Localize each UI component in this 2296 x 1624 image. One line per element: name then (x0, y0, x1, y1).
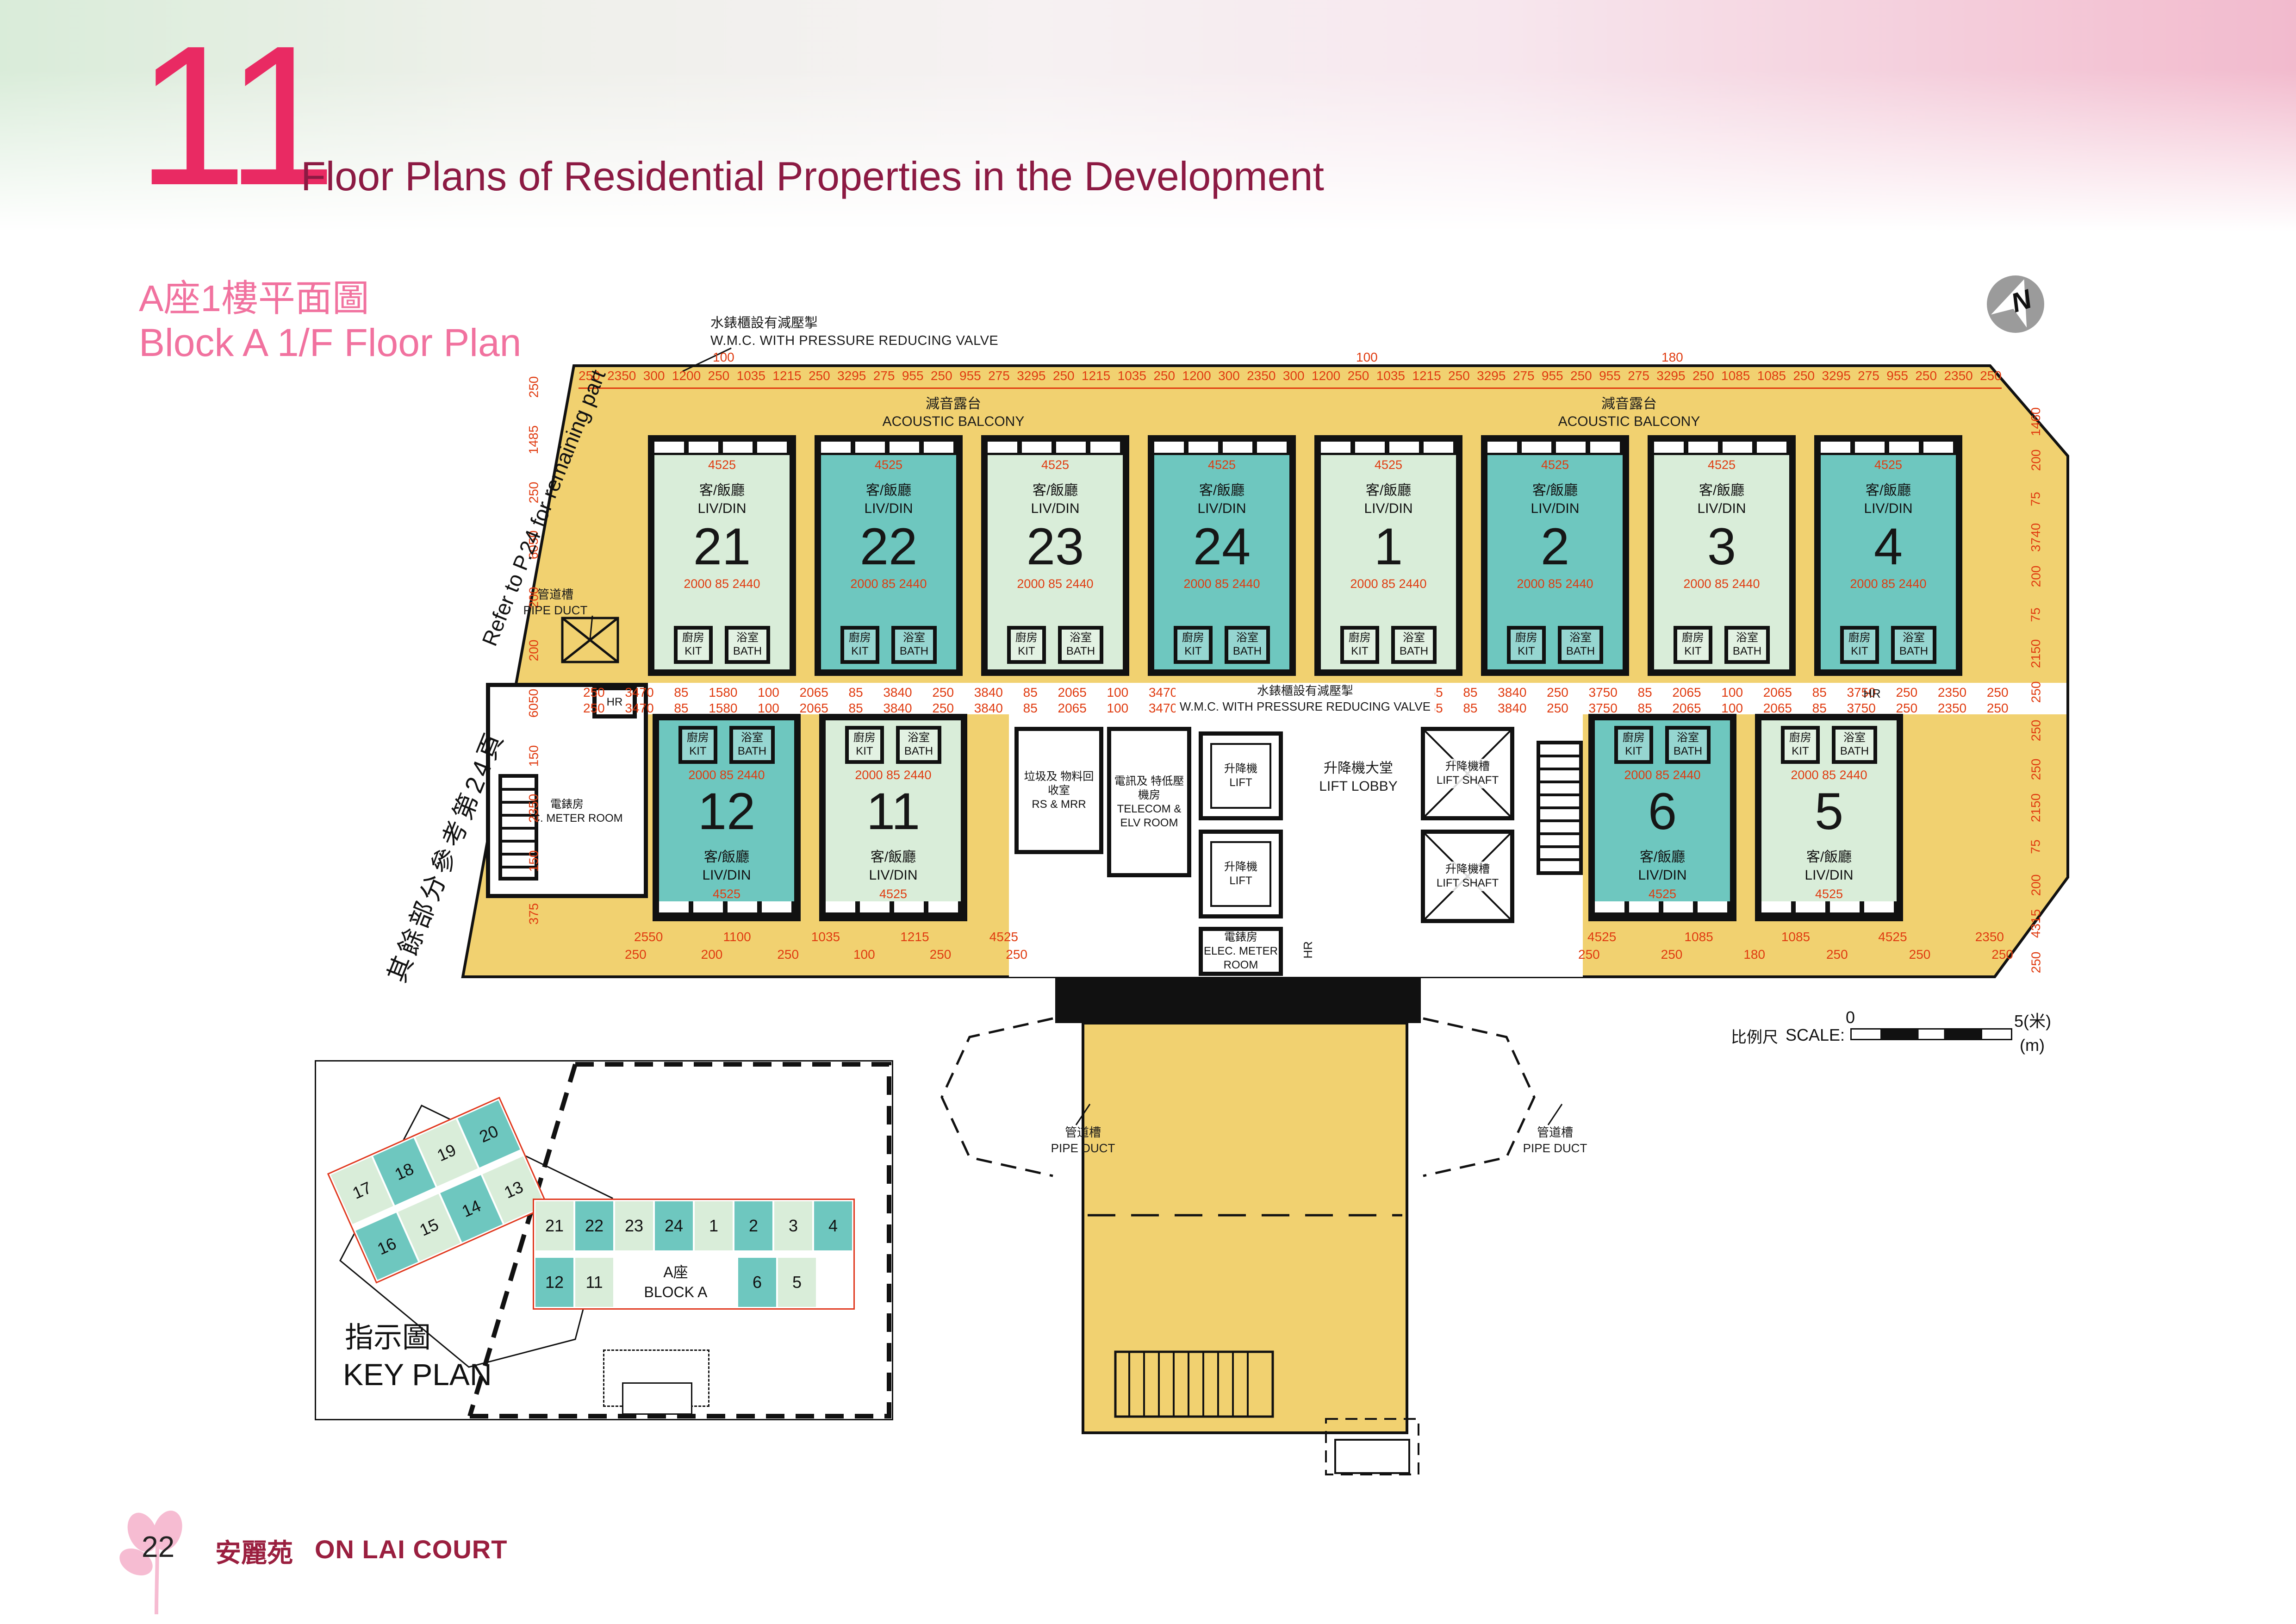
dimension-value: 1580 (709, 701, 737, 716)
dimension-value: 3750 (1847, 701, 1875, 716)
scale-bar: 比例尺 SCALE: 0 5(米) (m) (1731, 1012, 2092, 1062)
dimension-value: 100 (1721, 701, 1743, 716)
dimension-value: 250 (1987, 701, 2009, 716)
kitchen-label: 廚房KIT (1614, 726, 1653, 764)
lift-2: 升降機LIFT (1199, 830, 1283, 918)
unit-split-dim: 2000 85 2440 (1183, 577, 1260, 591)
bathroom-label: 浴室BATH (1832, 726, 1877, 764)
window-strip (1821, 442, 1956, 455)
unit-width-dim: 4525 (1649, 887, 1676, 901)
dimension-value: 4525 (1587, 930, 1616, 944)
unit-number: 1 (1374, 519, 1403, 574)
dimension-value: 100 (853, 947, 875, 962)
dimension-value: 85 (1023, 685, 1038, 700)
unit-number: 24 (1193, 519, 1251, 574)
dimension-value: 2065 (1763, 685, 1792, 700)
dimension-value: 4525 (989, 930, 1018, 944)
dimension-value: 275 (1858, 369, 1879, 383)
dimension-value: 250 (708, 369, 730, 383)
unit-number: 12 (698, 784, 756, 839)
dimension-value: 3840 (1498, 685, 1526, 700)
unit-width-dim: 4525 (875, 458, 902, 472)
dimension-value: 250 (583, 701, 605, 716)
window-strip (659, 901, 794, 915)
kitchen-label: 廚房KIT (1007, 626, 1046, 664)
block-a-label: A座BLOCK A (615, 1258, 736, 1307)
dimension-value: 3840 (883, 701, 912, 716)
keyplan-unit-3: 3 (774, 1201, 812, 1250)
stair-lobby (1537, 741, 1583, 875)
rs-mrr-room: 垃圾及 物料回收室RS & MRR (1014, 727, 1103, 854)
unit-21: 4525客/飯廳LIV/DIN212000 85 2440廚房KIT浴室BATH (648, 435, 796, 676)
dimension-value: 1035 (1376, 369, 1405, 383)
unit-23: 4525客/飯廳LIV/DIN232000 85 2440廚房KIT浴室BATH (981, 435, 1129, 676)
unit-width-dim: 4525 (713, 887, 740, 901)
dimension-value: 85 (1023, 701, 1038, 716)
unit-24: 4525客/飯廳LIV/DIN242000 85 2440廚房KIT浴室BATH (1148, 435, 1296, 676)
dimension-value: 100 (1107, 701, 1128, 716)
dimension-value: 250 (1661, 947, 1683, 962)
dimension-value: 2065 (1763, 701, 1792, 716)
dimension-value: 2350 (1938, 685, 1966, 700)
pipe-duct-label-left: 管道槽PIPE DUCT (495, 587, 616, 618)
dimension-value: 100 (1107, 685, 1128, 700)
dimension-value: 2350 (1938, 701, 1966, 716)
kitchen-label: 廚房KIT (1174, 626, 1213, 664)
dimension-value: 85 (1638, 685, 1652, 700)
dimension-value: 250 (1153, 369, 1175, 383)
bathroom-label: 浴室BATH (725, 626, 770, 664)
dimension-value: 1085 (1721, 369, 1750, 383)
dimension-value: 1200 (1182, 369, 1211, 383)
dimension-value: 100 (1356, 350, 1378, 365)
dimension-value: 3750 (1589, 685, 1618, 700)
window-strip (1595, 901, 1730, 915)
dimension-row-bottom-right-b: 250250180250250250 (1578, 947, 2013, 962)
kitchen-label: 廚房KIT (840, 626, 879, 664)
dimension-value: 3740 (2028, 523, 2043, 552)
external-stair (1115, 1352, 1273, 1417)
key-plan-title-zh: 指示圖 (345, 1314, 431, 1355)
dimension-value: 200 (2028, 874, 2043, 896)
unit-row-bottom-right: 4525客/飯廳LIV/DIN62000 85 2440廚房KIT浴室BATH4… (1588, 714, 1903, 921)
dimension-value: 250 (1980, 369, 2002, 383)
livdin-label: 客/飯廳LIV/DIN (697, 481, 746, 518)
dimension-value: 85 (674, 685, 688, 700)
dimension-value: 1085 (1781, 930, 1810, 944)
key-plan: 17181920 16151413 212223241234 1211 A座BL… (315, 1060, 893, 1420)
dimension-row-bottom-right-a: 45251085108545252350 (1587, 930, 2004, 944)
dimension-value: 250 (1826, 947, 1848, 962)
dimension-value: 250 (1793, 369, 1815, 383)
dimension-value: 85 (674, 701, 688, 716)
dimension-value: 4315 (2028, 909, 2043, 938)
dimension-value: 3750 (1589, 701, 1618, 716)
dimension-value: 275 (873, 369, 895, 383)
unit-2: 4525客/飯廳LIV/DIN22000 85 2440廚房KIT浴室BATH (1481, 435, 1629, 676)
dimension-value: 250 (2028, 681, 2043, 703)
dimension-value: 250 (1915, 369, 1937, 383)
unit-width-dim: 4525 (708, 458, 736, 472)
keyplan-unit-11: 11 (575, 1258, 613, 1307)
dimension-value: 2350 (1944, 369, 1972, 383)
dimension-value: 1215 (900, 930, 929, 944)
plan-title-zh: A座1樓平面圖 (139, 269, 369, 322)
dimension-value: 1100 (723, 930, 751, 944)
pipe-duct-label-bottom-left: 管道槽PIPE DUCT (1027, 1125, 1139, 1156)
livdin-label: 客/飯廳LIV/DIN (702, 848, 751, 884)
key-plan-entrance (603, 1349, 709, 1407)
kitchen-label: 廚房KIT (1781, 726, 1820, 764)
dimension-value: 180 (1743, 947, 1765, 962)
keyplan-unit-5: 5 (778, 1258, 816, 1307)
dimension-value: 2065 (1672, 701, 1701, 716)
dimension-value: 250 (932, 701, 954, 716)
dimension-value: 180 (1661, 350, 1683, 365)
dimension-value: 1085 (1684, 930, 1713, 944)
dimension-value: 85 (1638, 701, 1652, 716)
dimension-value: 375 (526, 903, 541, 925)
dimension-col-left: 2501485250605020020060501502350150375 (523, 380, 544, 921)
dimension-value: 250 (1547, 701, 1568, 716)
dimension-value: 250 (583, 685, 605, 700)
unit-width-dim: 4525 (1815, 887, 1843, 901)
dimension-value: 2350 (1975, 930, 2004, 944)
dimension-value: 250 (931, 369, 952, 383)
dimension-value: 75 (2028, 839, 2043, 854)
unit-row-top: 4525客/飯廳LIV/DIN212000 85 2440廚房KIT浴室BATH… (648, 435, 1962, 676)
unit-1: 4525客/飯廳LIV/DIN12000 85 2440廚房KIT浴室BATH (1314, 435, 1462, 676)
header-title: Floor Plans of Residential Properties in… (301, 153, 1324, 200)
dimension-value: 250 (1053, 369, 1075, 383)
footer-estate-en: ON LAI COURT (315, 1534, 507, 1564)
unit-width-dim: 4525 (879, 887, 907, 901)
unit-number: 5 (1815, 784, 1843, 839)
dimension-value: 300 (643, 369, 665, 383)
dimension-value: 100 (713, 350, 734, 365)
dimension-value: 1035 (811, 930, 840, 944)
unit-split-dim: 2000 85 2440 (1683, 577, 1760, 591)
dimension-value: 1035 (1118, 369, 1146, 383)
dimension-value: 3470 (1149, 701, 1177, 716)
unit-number: 2 (1541, 519, 1569, 574)
keyplan-unit-4: 4 (814, 1201, 852, 1250)
keyplan-unit-2: 2 (734, 1201, 772, 1250)
unit-number: 6 (1648, 784, 1677, 839)
footer-estate-zh: 安麗苑 (215, 1532, 293, 1570)
brochure-page: { "page": { "number_badge": "11", "heade… (0, 0, 2296, 1624)
bathroom-label: 浴室BATH (1058, 626, 1103, 664)
lift-shaft-2: 升降機槽LIFT SHAFT (1421, 830, 1514, 923)
dimension-line-top (579, 387, 2002, 389)
dimension-value: 75 (2028, 608, 2043, 622)
dimension-value: 955 (902, 369, 924, 383)
dimension-value: 1215 (1082, 369, 1110, 383)
dimension-col-right: 1460200753740200752150250250250215075200… (2025, 414, 2047, 970)
window-strip (1321, 442, 1456, 455)
unit-6: 4525客/飯廳LIV/DIN62000 85 2440廚房KIT浴室BATH (1588, 714, 1736, 921)
unit-split-dim: 2000 85 2440 (1517, 577, 1593, 591)
dimension-value: 250 (1570, 369, 1592, 383)
unit-split-dim: 2000 85 2440 (1624, 768, 1700, 782)
dimension-value: 275 (1513, 369, 1535, 383)
bathroom-label: 浴室BATH (1225, 626, 1270, 664)
dimension-value: 2065 (1058, 701, 1087, 716)
dimension-value: 2350 (526, 794, 541, 823)
dimension-value: 2065 (1058, 685, 1087, 700)
dimension-value: 2065 (800, 685, 828, 700)
dimension-value: 1085 (1757, 369, 1786, 383)
dimension-value: 150 (526, 850, 541, 872)
dimension-value: 200 (2028, 450, 2043, 471)
dimension-value: 2065 (1672, 685, 1701, 700)
unit-width-dim: 4525 (1874, 458, 1902, 472)
unit-split-dim: 2000 85 2440 (688, 768, 765, 782)
keyplan-unit-21: 21 (535, 1201, 573, 1250)
unit-split-dim: 2000 85 2440 (1350, 577, 1426, 591)
dimension-value: 955 (1542, 369, 1563, 383)
unit-split-dim: 2000 85 2440 (855, 768, 931, 782)
dimension-value: 250 (526, 376, 541, 398)
dimension-value: 300 (1218, 369, 1240, 383)
keyplan-unit-12: 12 (535, 1258, 573, 1307)
unit-row-bottom-left: 4525客/飯廳LIV/DIN122000 85 2440廚房KIT浴室BATH… (653, 714, 967, 921)
unit-5: 4525客/飯廳LIV/DIN52000 85 2440廚房KIT浴室BATH (1755, 714, 1903, 921)
dimension-value: 250 (1448, 369, 1470, 383)
dimension-value: 1215 (772, 369, 801, 383)
unit-width-dim: 4525 (1375, 458, 1402, 472)
dimension-value: 300 (1283, 369, 1305, 383)
unit-12: 4525客/飯廳LIV/DIN122000 85 2440廚房KIT浴室BATH (653, 714, 801, 921)
window-strip (654, 442, 790, 455)
dimension-value: 250 (2028, 720, 2043, 742)
key-plan-title-en: KEY PLAN (343, 1357, 492, 1392)
dimension-value: 250 (1896, 701, 1917, 716)
dimension-value: 85 (1463, 685, 1477, 700)
unit-number: 11 (866, 784, 920, 839)
livdin-label: 客/飯廳LIV/DIN (1697, 481, 1746, 518)
livdin-label: 客/飯廳LIV/DIN (1638, 848, 1686, 884)
dimension-value: 3295 (1017, 369, 1045, 383)
bathroom-label: 浴室BATH (1891, 626, 1936, 664)
dimension-value: 85 (849, 685, 863, 700)
bathroom-label: 浴室BATH (1558, 626, 1603, 664)
dimension-value: 200 (701, 947, 723, 962)
dimension-value: 1200 (1312, 369, 1340, 383)
unit-number: 4 (1874, 519, 1903, 574)
keyplan-unit-24: 24 (655, 1201, 693, 1250)
unit-split-dim: 2000 85 2440 (1791, 768, 1867, 782)
livdin-label: 客/飯廳LIV/DIN (1031, 481, 1079, 518)
dimension-value: 2150 (2028, 793, 2043, 822)
dimension-value: 85 (1812, 701, 1827, 716)
livdin-label: 客/飯廳LIV/DIN (1197, 481, 1246, 518)
dimension-value: 85 (1812, 685, 1827, 700)
window-strip (1654, 442, 1789, 455)
dimension-value: 3470 (625, 685, 653, 700)
livdin-label: 客/飯廳LIV/DIN (1531, 481, 1579, 518)
livdin-label: 客/飯廳LIV/DIN (864, 481, 913, 518)
dimension-value: 75 (2028, 492, 2043, 506)
dimension-value: 250 (2028, 758, 2043, 780)
dimension-row-bottom-left-b: 250200250100250250 (625, 947, 1027, 962)
dimension-value: 275 (988, 369, 1010, 383)
dimension-value: 3840 (974, 685, 1003, 700)
unit-3: 4525客/飯廳LIV/DIN32000 85 2440廚房KIT浴室BATH (1648, 435, 1796, 676)
dimension-value: 150 (526, 745, 541, 767)
lift-lobby-label: 升降機大堂LIFT LOBBY (1305, 759, 1412, 795)
dimension-value: 3470 (1149, 685, 1177, 700)
dimension-value: 1200 (672, 369, 701, 383)
key-plan-right-wing: 212223241234 1211 A座BLOCK A 65 (533, 1199, 855, 1310)
footer: 22 安麗苑 ON LAI COURT (116, 1510, 856, 1617)
keyplan-unit-23: 23 (615, 1201, 653, 1250)
dimension-value: 4525 (1878, 930, 1907, 944)
unit-22: 4525客/飯廳LIV/DIN222000 85 2440廚房KIT浴室BATH (815, 435, 963, 676)
dimension-value: 1035 (737, 369, 765, 383)
dimension-value: 250 (1348, 369, 1369, 383)
dimension-value: 1485 (526, 425, 541, 454)
dimension-value: 3470 (625, 701, 653, 716)
dimension-value: 2350 (1247, 369, 1276, 383)
dimension-value: 3295 (1822, 369, 1850, 383)
kitchen-label: 廚房KIT (845, 726, 884, 764)
dimension-value: 955 (1599, 369, 1621, 383)
keyplan-unit-1: 1 (695, 1201, 733, 1250)
dimension-value: 250 (1909, 947, 1931, 962)
dimension-value: 3840 (1498, 701, 1526, 716)
elec-meter-room-center: 電錶房ELEC. METER ROOM (1199, 927, 1283, 976)
unit-4: 4525客/飯廳LIV/DIN42000 85 2440廚房KIT浴室BATH (1814, 435, 1962, 676)
dimension-value: 250 (1547, 685, 1568, 700)
livdin-label: 客/飯廳LIV/DIN (869, 848, 917, 884)
unit-split-dim: 2000 85 2440 (850, 577, 927, 591)
dimension-value: 955 (1886, 369, 1908, 383)
livdin-label: 客/飯廳LIV/DIN (1364, 481, 1412, 518)
dimension-value: 250 (625, 947, 647, 962)
keyplan-unit-22: 22 (575, 1201, 613, 1250)
dimension-value: 100 (1721, 685, 1743, 700)
unit-width-dim: 4525 (1708, 458, 1736, 472)
kitchen-label: 廚房KIT (1340, 626, 1379, 664)
dimension-value: 250 (1692, 369, 1714, 383)
unit-number: 22 (860, 519, 918, 574)
hose-reel-right: HR (1856, 686, 1888, 702)
dimension-value: 275 (1628, 369, 1649, 383)
unit-split-dim: 2000 85 2440 (684, 577, 760, 591)
window-strip (826, 901, 961, 915)
unit-split-dim: 2000 85 2440 (1850, 577, 1926, 591)
dimension-value: 2065 (800, 701, 828, 716)
bathroom-label: 浴室BATH (896, 726, 941, 764)
unit-split-dim: 2000 85 2440 (1017, 577, 1093, 591)
lift-shaft-1: 升降機槽LIFT SHAFT (1421, 727, 1514, 820)
unit-width-dim: 4525 (1208, 458, 1236, 472)
dimension-value: 955 (959, 369, 981, 383)
dimension-row-bottom-left-a: 25501100103512154525 (634, 930, 1018, 944)
window-strip (1154, 442, 1289, 455)
dimension-value: 250 (1578, 947, 1600, 962)
unit-number: 21 (693, 519, 751, 574)
dimension-value: 250 (1006, 947, 1027, 962)
dimension-value: 3840 (883, 685, 912, 700)
dimension-value: 250 (932, 685, 954, 700)
dimension-value: 3840 (974, 701, 1003, 716)
bathroom-label: 浴室BATH (891, 626, 937, 664)
telecom-elv-room: 電訊及 特低壓機房TELECOM & ELV ROOM (1107, 727, 1191, 877)
dimension-value: 250 (930, 947, 952, 962)
keyplan-unit-6: 6 (738, 1258, 776, 1307)
livdin-label: 客/飯廳LIV/DIN (1804, 848, 1853, 884)
structural-bar (1055, 977, 1421, 1023)
bathroom-label: 浴室BATH (1665, 726, 1711, 764)
kitchen-label: 廚房KIT (678, 726, 717, 764)
window-strip (988, 442, 1123, 455)
dimension-value: 200 (2028, 565, 2043, 587)
livdin-label: 客/飯廳LIV/DIN (1864, 481, 1912, 518)
scale-bar-rule (1850, 1028, 2012, 1040)
dimension-value: 100 (758, 701, 779, 716)
kitchen-label: 廚房KIT (1507, 626, 1546, 664)
unit-width-dim: 4525 (1541, 458, 1569, 472)
dimension-value: 85 (1463, 701, 1477, 716)
window-strip (821, 442, 956, 455)
dimension-value: 200 (526, 640, 541, 662)
window-strip (1487, 442, 1623, 455)
unit-number: 3 (1707, 519, 1736, 574)
dimension-value: 6050 (526, 689, 541, 718)
lift-1: 升降機LIFT (1199, 731, 1283, 820)
kitchen-label: 廚房KIT (1674, 626, 1712, 664)
dimension-value: 2550 (634, 930, 663, 944)
dimension-value: 250 (2028, 952, 2043, 974)
dimension-value: 250 (809, 369, 830, 383)
dimension-value: 250 (1987, 685, 2009, 700)
unit-number: 23 (1027, 519, 1084, 574)
bathroom-label: 浴室BATH (1391, 626, 1437, 664)
unit-11: 4525客/飯廳LIV/DIN112000 85 2440廚房KIT浴室BATH (819, 714, 967, 921)
acoustic-balcony-label-right: 減音露台ACOUSTIC BALCONY (1532, 395, 1726, 430)
unit-width-dim: 4525 (1041, 458, 1069, 472)
dimension-value: 1460 (2028, 407, 2043, 436)
dimension-value: 250 (1991, 947, 2013, 962)
window-strip (1761, 901, 1897, 915)
dimension-value: 250 (777, 947, 799, 962)
dimension-value: 3295 (837, 369, 866, 383)
bathroom-label: 浴室BATH (729, 726, 775, 764)
kitchen-label: 廚房KIT (674, 626, 713, 664)
wmc-note-top: 水錶櫃設有減壓掣 W.M.C. WITH PRESSURE REDUCING V… (710, 315, 998, 350)
pipe-duct-label-bottom-right: 管道槽PIPE DUCT (1500, 1125, 1611, 1156)
wmc-note-center: 水錶櫃設有減壓掣W.M.C. WITH PRESSURE REDUCING VA… (1176, 683, 1435, 715)
footer-page-number: 22 (142, 1530, 174, 1564)
dimension-value: 100 (758, 685, 779, 700)
dimension-value: 85 (849, 701, 863, 716)
bathroom-label: 浴室BATH (1724, 626, 1770, 664)
dimension-value: 1215 (1412, 369, 1441, 383)
dimension-value: 3295 (1477, 369, 1506, 383)
dimension-value: 250 (1896, 685, 1917, 700)
kitchen-label: 廚房KIT (1840, 626, 1879, 664)
dimension-value: 1580 (709, 685, 737, 700)
dimension-value: 3295 (1656, 369, 1685, 383)
dimension-row-top: 2502350300120025010351215250329527595525… (579, 369, 2002, 383)
dimension-value: 2150 (2028, 639, 2043, 668)
hose-reel-center: HR (1300, 934, 1316, 966)
acoustic-balcony-label-left: 減音露台ACOUSTIC BALCONY (856, 395, 1051, 430)
